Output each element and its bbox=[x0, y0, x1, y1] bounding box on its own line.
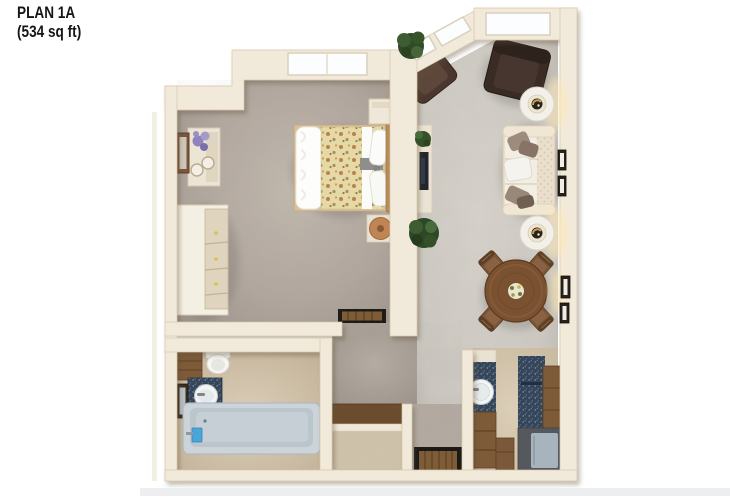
left-shadow-strip bbox=[152, 112, 157, 481]
floor-plan-image: PLAN 1A (534 sq ft) bbox=[0, 0, 730, 500]
sofa bbox=[500, 124, 560, 220]
kitchen-left-wall bbox=[462, 350, 473, 470]
side-table-lamp-bottom bbox=[520, 216, 554, 250]
bathroom-right-wall bbox=[320, 338, 332, 470]
divider-wall bbox=[390, 50, 417, 336]
closet-shelf bbox=[332, 404, 402, 431]
kitchen-tall-counter bbox=[518, 356, 545, 428]
nightstand bbox=[369, 99, 392, 124]
closet-right-wall bbox=[402, 404, 412, 470]
kitchen-wood-cabinet bbox=[543, 366, 561, 432]
bathroom-top-wall bbox=[165, 338, 332, 352]
side-table-lamp-top bbox=[520, 87, 554, 121]
toilet bbox=[206, 349, 230, 374]
floor-plant bbox=[409, 218, 439, 248]
table-centerpiece bbox=[508, 283, 524, 299]
bedroom-bottom-wall bbox=[165, 322, 342, 336]
living-window bbox=[486, 13, 550, 35]
bedroom-door-mat bbox=[338, 309, 386, 323]
refrigerator bbox=[518, 428, 561, 470]
bottom-shadow-strip bbox=[140, 488, 730, 496]
dresser bbox=[171, 204, 239, 320]
console-plant bbox=[415, 131, 431, 147]
bedroom-wall-mirror bbox=[177, 133, 189, 173]
bedroom-vanity bbox=[188, 128, 220, 186]
dining-table bbox=[478, 250, 555, 333]
bathroom-wall-cabinet bbox=[177, 352, 202, 380]
floor-plan-drawing bbox=[0, 0, 730, 500]
kitchen-base-cabinet bbox=[474, 412, 496, 468]
bathtub bbox=[183, 403, 320, 454]
bed bbox=[292, 124, 396, 218]
bottom-wall bbox=[165, 470, 577, 481]
left-wall bbox=[165, 86, 177, 481]
kitchen-bottom-cabinet bbox=[496, 438, 514, 470]
